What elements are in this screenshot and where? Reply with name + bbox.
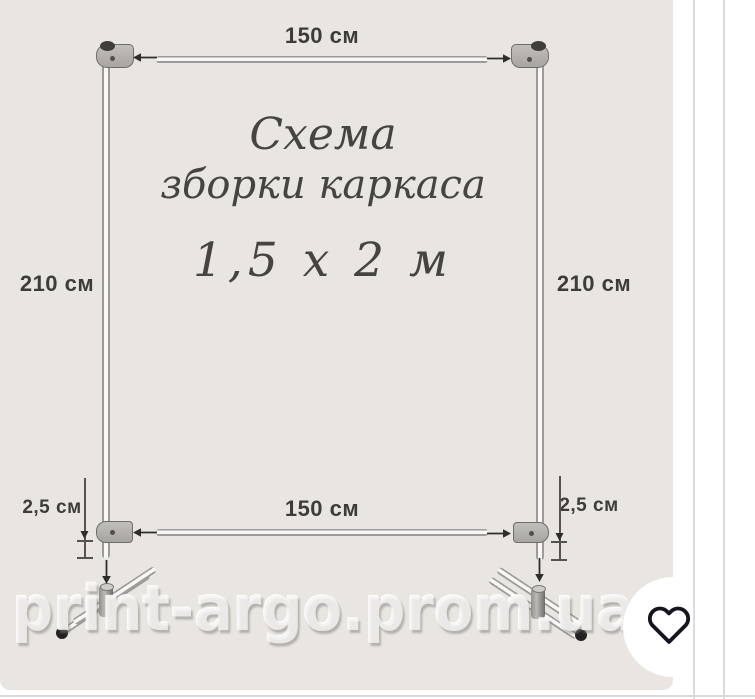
connector-knob-icon — [100, 41, 115, 51]
top-left-corner-connector-icon — [96, 44, 134, 68]
bottom-bar-tube — [156, 529, 488, 536]
arrow-left-icon — [133, 527, 157, 538]
left-offset-dimension-line — [84, 478, 86, 558]
bottom-left-clamp-connector-icon — [96, 521, 133, 543]
product-image-card[interactable]: 150 см 210 см 210 см Схема зборки к — [0, 0, 673, 690]
connector-screw-icon — [110, 530, 115, 535]
connector-screw-icon — [110, 56, 115, 61]
arrow-right-icon — [487, 53, 511, 64]
left-pole-tube — [102, 64, 110, 558]
connector-screw-icon — [527, 57, 532, 62]
page-bottom-divider — [0, 695, 755, 697]
top-bar-tube — [156, 56, 488, 63]
title-line-1: Схема — [160, 110, 486, 161]
dimension-tick — [77, 557, 93, 559]
gallery-divider-line — [693, 0, 695, 699]
watermark-text: print-argo.prom.ua — [12, 572, 635, 645]
dimension-label-offset-left: 2,5 см — [22, 497, 81, 519]
dimension-label-offset-right: 2,5 см — [559, 495, 618, 517]
arrow-down-icon — [554, 530, 565, 541]
bottom-right-clamp-connector-icon — [513, 522, 549, 543]
next-card-edge-line — [723, 0, 725, 699]
title-line-2: зборки каркаса — [160, 163, 486, 207]
heart-icon — [646, 603, 692, 647]
product-page: { "diagram": { "title_line1": "Схема", "… — [0, 0, 755, 699]
dimension-label-top: 150 см — [285, 23, 359, 49]
dimension-tick — [551, 559, 567, 561]
arrow-left-icon — [133, 52, 157, 63]
diagram-title: Схема зборки каркаса 1,5 х 2 м — [160, 110, 486, 288]
right-pole-tube — [536, 64, 544, 560]
right-offset-dimension-line — [559, 476, 561, 561]
top-right-corner-connector-icon — [511, 44, 549, 68]
dimension-label-right: 210 см — [557, 271, 631, 297]
dimension-tick — [77, 540, 93, 542]
arrow-right-icon — [487, 528, 511, 539]
title-line-3: 1,5 х 2 м — [160, 233, 486, 288]
dimension-label-left: 210 см — [20, 271, 94, 297]
favorite-button[interactable] — [645, 603, 693, 649]
arrow-down-icon — [79, 528, 90, 539]
connector-knob-icon — [531, 41, 546, 51]
dimension-label-bottom: 150 см — [285, 496, 359, 522]
dimension-tick — [551, 541, 567, 543]
connector-screw-icon — [529, 531, 534, 536]
